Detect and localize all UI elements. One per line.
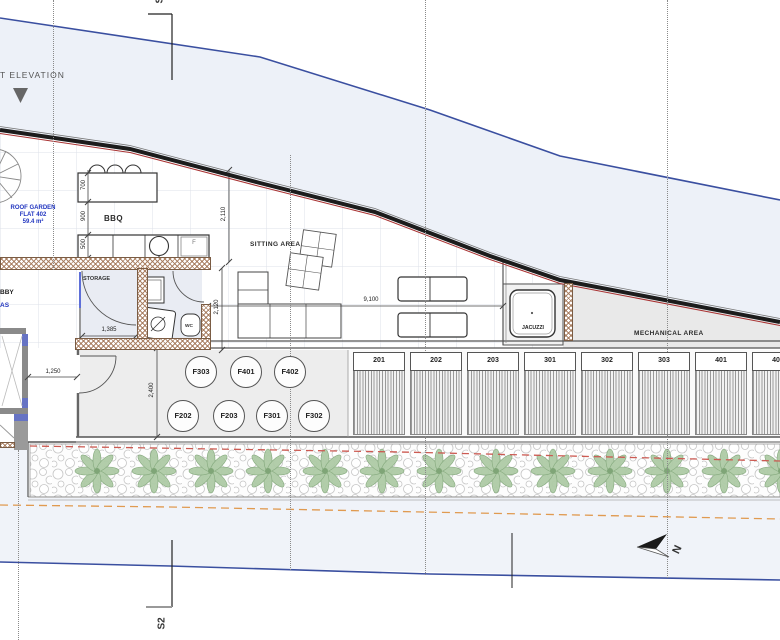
flue-circle-F402: F402 xyxy=(274,356,306,388)
dim-terrace-width: 9,100 xyxy=(356,297,386,303)
grid-axis-a xyxy=(53,0,54,270)
unit-panel-louvre-401 xyxy=(695,371,747,435)
roof-garden-title: ROOF GARDEN FLAT 402 59.4 m² xyxy=(4,205,62,226)
unit-panel-label-202: 202 xyxy=(410,352,462,371)
storage-label: STORAGE xyxy=(83,276,110,282)
flue-circle-F202: F202 xyxy=(167,400,199,432)
unit-panel-label-203: 203 xyxy=(467,352,519,371)
roof-garden-line3: 59.4 m² xyxy=(4,219,62,226)
jacuzzi-label: JACUZZI xyxy=(515,325,551,331)
wc-label: WC xyxy=(185,324,193,329)
section-label-top: S2 xyxy=(155,0,166,4)
dim-lobby-width: 1,250 xyxy=(38,369,68,375)
unit-panel-label-401: 401 xyxy=(695,352,747,371)
grid-axis-c xyxy=(425,0,426,575)
unit-panel-label-301: 301 xyxy=(524,352,576,371)
dim-upper-height: 2,110 xyxy=(221,201,227,227)
unit-panel-louvre-303 xyxy=(638,371,690,435)
unit-panel-label-201: 201 xyxy=(353,352,405,371)
flue-circle-F401: F401 xyxy=(230,356,262,388)
dim-storage-width: 1,385 xyxy=(94,327,124,333)
grid-axis-d xyxy=(667,0,668,578)
wall-hatch-top-band xyxy=(0,257,211,270)
unit-panel-louvre-301 xyxy=(524,371,576,435)
grid-axis-e xyxy=(18,450,19,640)
flue-circle-F203: F203 xyxy=(213,400,245,432)
unit-panel-label-302: 302 xyxy=(581,352,633,371)
elevation-label: T ELEVATION xyxy=(0,70,65,80)
areas-label-partial: AS xyxy=(0,302,9,309)
section-label-bottom: S2 xyxy=(157,610,168,630)
lobby-label-partial: BBY xyxy=(0,289,14,296)
unit-panel-louvre-202 xyxy=(410,371,462,435)
roof-garden-line2: FLAT 402 xyxy=(4,212,62,219)
mechanical-area-label: MECHANICAL AREA xyxy=(634,330,704,337)
dim-table-gap: 900 xyxy=(81,206,87,226)
wall-hatch-jacuzzi xyxy=(564,283,573,341)
bbq-label: BBQ xyxy=(104,214,123,223)
fridge-label: F xyxy=(181,240,207,246)
dim-room-height: 2,400 xyxy=(149,377,155,403)
unit-panel-label-402: 402 xyxy=(752,352,780,371)
unit-panel-louvre-201 xyxy=(353,371,405,435)
sitting-area-label: SITTING AREA xyxy=(250,241,300,248)
dim-table-width: 700 xyxy=(81,175,87,195)
unit-panel-louvre-402 xyxy=(752,371,780,435)
unit-panel-label-303: 303 xyxy=(638,352,690,371)
wall-hatch-corner xyxy=(0,442,15,448)
unit-panel-louvre-203 xyxy=(467,371,519,435)
plan-vector-layer xyxy=(0,0,780,640)
unit-panel-louvre-302 xyxy=(581,371,633,435)
dim-counter-depth: 500 xyxy=(81,234,87,254)
flue-circle-F303: F303 xyxy=(185,356,217,388)
flue-circle-F301: F301 xyxy=(256,400,288,432)
roof-garden-line1: ROOF GARDEN xyxy=(4,205,62,212)
flue-circle-F302: F302 xyxy=(298,400,330,432)
wall-hatch-bottom-band xyxy=(75,338,211,350)
dim-lower-height: 2,120 xyxy=(214,294,220,320)
roof-plan-drawing: T ELEVATION ROOF GARDEN FLAT 402 59.4 m²… xyxy=(0,0,780,640)
